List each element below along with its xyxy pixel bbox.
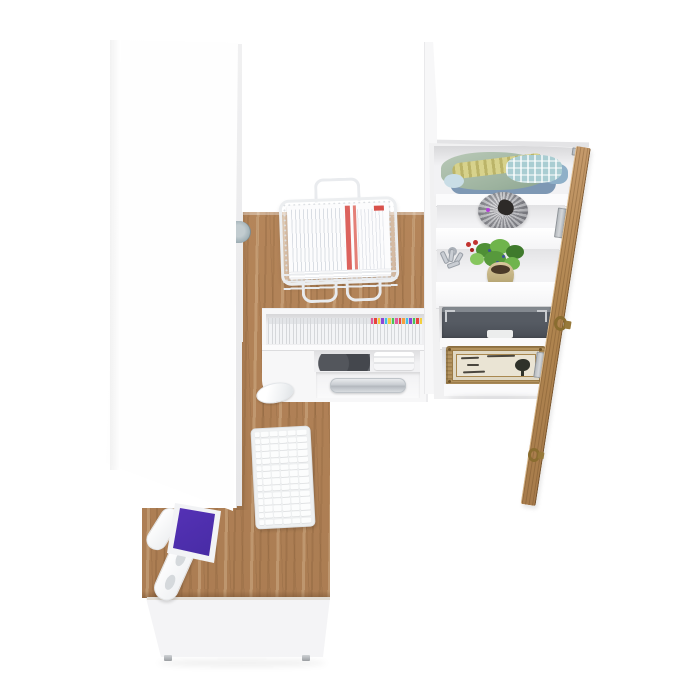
- scene: [0, 0, 700, 700]
- keyboard-key: [279, 431, 287, 437]
- cd-spine: [419, 318, 423, 344]
- keyboard-key: [280, 464, 288, 470]
- keyboard-key: [258, 493, 263, 499]
- keyboard-key: [270, 445, 278, 451]
- wardrobe-left-edge-shading: [110, 40, 120, 470]
- keyboard-key: [270, 438, 278, 444]
- keyboard-key: [261, 445, 269, 451]
- keyboard-key: [258, 506, 263, 512]
- keyboard-key: [300, 504, 310, 510]
- shelf-board: [436, 282, 558, 308]
- keyboard-key: [272, 472, 280, 478]
- keyboard-key: [257, 479, 262, 485]
- keyboard-key: [292, 518, 300, 524]
- chest-stud: [448, 348, 451, 351]
- hutch-drawer-handle: [330, 378, 406, 393]
- keyboard-key: [270, 431, 278, 437]
- basket-purple-item: [486, 208, 490, 212]
- keyboard-key: [289, 450, 297, 456]
- keyboard-key: [298, 450, 308, 456]
- keyboard-key: [301, 510, 311, 516]
- paper-red-stripe: [345, 206, 352, 276]
- berry: [502, 255, 505, 258]
- keyboard-key: [257, 473, 262, 479]
- keyboard-key: [289, 457, 297, 463]
- keyboard-key: [288, 444, 296, 450]
- keyboard-key: [263, 472, 271, 478]
- berry: [488, 249, 491, 252]
- keyboard-key: [271, 458, 279, 464]
- folded-blue-plaid: [506, 155, 562, 183]
- keyboard-key: [300, 497, 310, 503]
- keyboard-key: [264, 492, 272, 498]
- keyboard-key: [289, 464, 297, 470]
- keyboard: [250, 425, 315, 529]
- keyboard-key: [288, 437, 296, 443]
- keyboard-key: [279, 437, 287, 443]
- dark-storage-drawer: [442, 307, 552, 340]
- keyboard-key: [290, 471, 298, 477]
- keyboard-key: [298, 457, 308, 463]
- folded-lightblue-cloth: [444, 174, 464, 188]
- keyboard-key: [274, 519, 282, 525]
- paper-red-header: [374, 205, 384, 210]
- document-tray: [276, 174, 404, 306]
- tray-papers: [287, 202, 392, 280]
- keyboard-key: [281, 485, 289, 491]
- keyboard-key: [261, 438, 269, 444]
- keyboard-key: [261, 432, 269, 438]
- keyboard-key: [255, 446, 260, 452]
- keyboard-key: [280, 458, 288, 464]
- keyboard-key: [255, 439, 260, 445]
- keyboard-key: [256, 452, 261, 458]
- keyboard-key: [256, 459, 261, 465]
- dark-items-on-shelf: [318, 354, 370, 371]
- basket-opening: [496, 198, 516, 217]
- keyboard-key: [271, 451, 279, 457]
- pot-soil: [491, 265, 510, 274]
- desk-foot: [164, 655, 172, 661]
- keyboard-key: [291, 504, 299, 510]
- keyboard-key: [283, 518, 291, 524]
- keyboard-key: [263, 486, 271, 492]
- keyboard-key: [256, 466, 261, 472]
- label-script-line: [461, 357, 479, 359]
- keyboard-key: [292, 511, 300, 517]
- fabric-basket: [478, 192, 528, 230]
- keyboard-key: [300, 490, 310, 496]
- wicker-chest-label: [452, 350, 540, 381]
- keyboard-key: [265, 513, 273, 519]
- keyboard-key: [263, 479, 271, 485]
- dark-drawer-handle: [487, 330, 513, 338]
- keyboard-key: [297, 436, 307, 442]
- keyboard-key: [255, 432, 260, 438]
- keyboard-key: [259, 513, 264, 519]
- keyboard-key: [262, 465, 270, 471]
- keyboard-key: [297, 430, 307, 436]
- keyboard-key: [262, 459, 270, 465]
- keyboard-key: [273, 505, 281, 511]
- keyboard-key: [283, 512, 291, 518]
- bookcase-floor-shadow: [448, 395, 544, 401]
- media-shelf: [266, 314, 424, 345]
- cd-row: [268, 317, 422, 344]
- keyboard-key: [281, 471, 289, 477]
- keyboard-key: [259, 520, 264, 526]
- drawer-corner-bracket: [445, 310, 455, 322]
- arm-slot: [163, 573, 178, 591]
- keyboard-key: [297, 443, 307, 449]
- keyboard-key: [282, 505, 290, 511]
- keyboard-key: [280, 451, 288, 457]
- keyboard-key: [282, 491, 290, 497]
- keyboard-key: [279, 444, 287, 450]
- folded-papers-stack: [374, 352, 414, 370]
- paper-text-lines: [357, 208, 385, 269]
- chest-stud: [448, 380, 451, 383]
- keyboard-key: [274, 512, 282, 518]
- label-script-line: [487, 355, 515, 357]
- keyboard-key: [299, 477, 309, 483]
- keyboard-key: [282, 498, 290, 504]
- keyboard-key: [290, 477, 298, 483]
- keyboard-key: [264, 499, 272, 505]
- label-script-line: [467, 364, 479, 366]
- chest-stud: [539, 348, 542, 351]
- keyboard-key: [273, 492, 281, 498]
- keyboard-key: [288, 430, 296, 436]
- keyboard-key: [273, 499, 281, 505]
- leaf-cluster: [470, 253, 484, 265]
- keyboard-key: [264, 506, 272, 512]
- keyboard-key: [272, 485, 280, 491]
- drawer-corner-bracket: [537, 310, 547, 322]
- desk-foot: [302, 655, 310, 661]
- keyboard-key: [290, 484, 298, 490]
- tray-foot: [345, 281, 382, 302]
- keyboard-key: [272, 478, 280, 484]
- keyboard-key: [281, 478, 289, 484]
- hutch-open-shelf: [314, 350, 420, 372]
- keyboard-key: [258, 500, 263, 506]
- keyboard-key: [299, 484, 309, 490]
- ring-pull-mount: [537, 452, 544, 460]
- paper-text-lines: [291, 208, 345, 274]
- keyboard-keys: [255, 430, 312, 526]
- label-script-line: [463, 371, 485, 373]
- keyboard-key: [291, 498, 299, 504]
- wicker-chest: [446, 346, 546, 386]
- keyboard-key: [301, 517, 311, 523]
- ring-pull-mount: [564, 321, 571, 330]
- keyboard-key: [262, 452, 270, 458]
- label-tree-trunk: [521, 370, 524, 376]
- keyboard-key: [265, 519, 273, 525]
- keyboard-key: [299, 470, 309, 476]
- hutch-drawer: [316, 372, 420, 398]
- tray-foot: [301, 282, 338, 303]
- keyboard-key: [291, 491, 299, 497]
- keyboard-key: [298, 463, 308, 469]
- keyboard-key: [257, 486, 262, 492]
- keyboard-key: [271, 465, 279, 471]
- floor-shadow: [158, 659, 326, 667]
